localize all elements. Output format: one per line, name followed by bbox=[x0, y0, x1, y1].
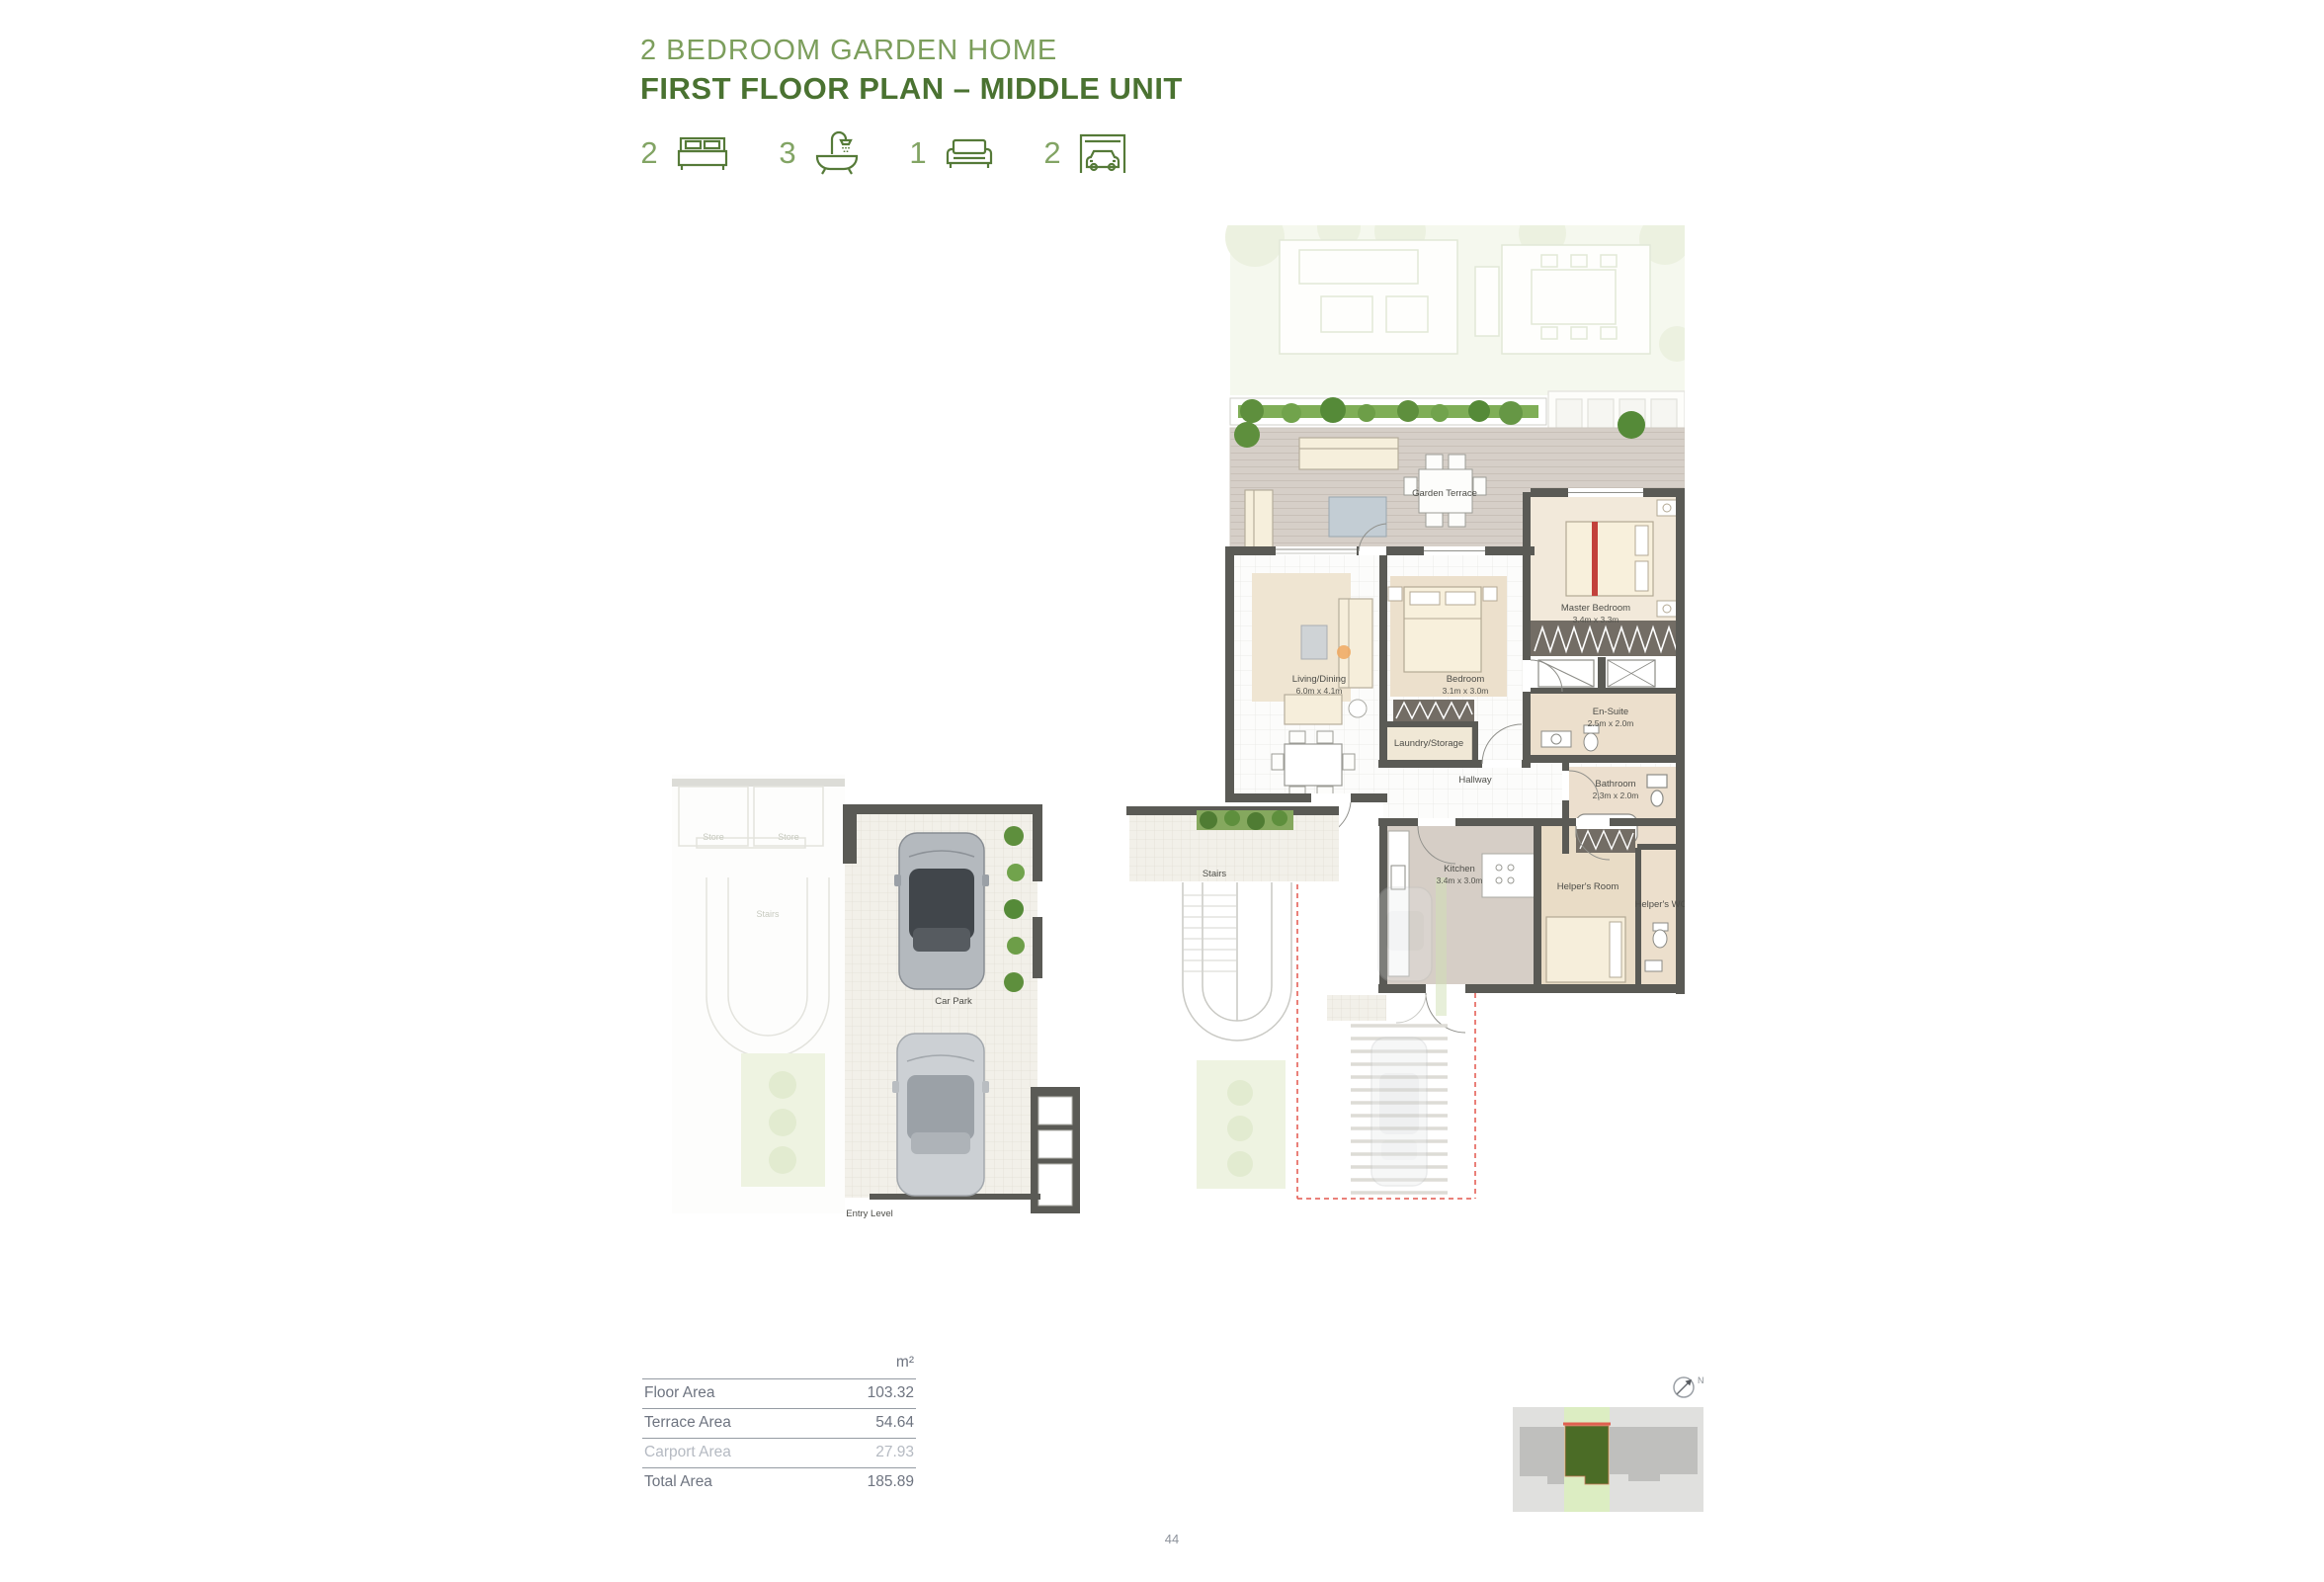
room-label: Master Bedroom bbox=[1561, 603, 1630, 614]
ghost-room-label: Stairs bbox=[756, 909, 780, 919]
north-label: N bbox=[1698, 1375, 1704, 1385]
stat-car-spaces: 2 bbox=[1043, 131, 1128, 175]
room-label: Stairs bbox=[1203, 869, 1227, 879]
area-table: m² Floor Area 103.32 Terrace Area 54.64 … bbox=[642, 1354, 916, 1497]
area-label: Floor Area bbox=[644, 1384, 715, 1402]
page-number: 44 bbox=[1132, 1532, 1211, 1546]
room-label: Hallway bbox=[1458, 775, 1492, 786]
room-label: Helper's Room bbox=[1557, 881, 1619, 892]
car-space-count: 2 bbox=[1043, 135, 1061, 171]
sofa-icon bbox=[943, 132, 996, 174]
ghost-car-upper bbox=[1378, 887, 1432, 981]
bathroom-count: 3 bbox=[779, 135, 796, 171]
north-indicator: N bbox=[1674, 1375, 1704, 1397]
area-label: Terrace Area bbox=[644, 1414, 731, 1432]
entry-porch bbox=[1327, 995, 1426, 1023]
room-dims: 3.4m x 3.0m bbox=[1437, 875, 1483, 885]
area-value: 185.89 bbox=[868, 1473, 914, 1491]
room-label: Helper's WC bbox=[1634, 899, 1685, 910]
room-label: En-Suite bbox=[1593, 707, 1628, 717]
ghost-room-label: Store bbox=[703, 832, 724, 842]
room-label: Entry Level bbox=[846, 1208, 893, 1219]
table-row: Terrace Area 54.64 bbox=[642, 1408, 916, 1438]
bed-icon bbox=[674, 131, 731, 175]
stat-living-rooms: 1 bbox=[909, 132, 996, 174]
area-unit-header: m² bbox=[642, 1354, 916, 1378]
ghost-car-pergola bbox=[1371, 1038, 1427, 1186]
table-row: Floor Area 103.32 bbox=[642, 1378, 916, 1408]
room-label: Kitchen bbox=[1444, 864, 1475, 874]
room-dims: 2.5m x 2.0m bbox=[1588, 718, 1634, 728]
carport bbox=[843, 804, 1080, 1213]
unit-locator-map: N bbox=[1510, 1368, 1707, 1521]
room-dims: 6.0m x 4.1m bbox=[1296, 686, 1343, 696]
header: 2 BEDROOM GARDEN HOME FIRST FLOOR PLAN –… bbox=[640, 36, 1183, 176]
room-label: Bathroom bbox=[1595, 779, 1635, 790]
floor-plan: Garden Terrace Living/Dining 6.0m x 4.1m… bbox=[647, 225, 1685, 1225]
garage-icon bbox=[1077, 131, 1128, 175]
page-subtitle: FIRST FLOOR PLAN – MIDDLE UNIT bbox=[640, 71, 1183, 107]
room-label: Laundry/Storage bbox=[1394, 738, 1463, 749]
living-count: 1 bbox=[909, 135, 927, 171]
page-title: 2 BEDROOM GARDEN HOME bbox=[640, 36, 1183, 67]
bath-icon bbox=[812, 130, 862, 176]
ghost-room-label: Store bbox=[778, 832, 799, 842]
car-2 bbox=[892, 1034, 989, 1196]
room-label: Garden Terrace bbox=[1412, 488, 1477, 499]
ghost-adjacent-carport bbox=[672, 775, 845, 1213]
unit-stats-row: 2 3 bbox=[640, 130, 1183, 176]
car-1 bbox=[894, 833, 989, 989]
stat-bathrooms: 3 bbox=[779, 130, 862, 176]
brochure-page: 2 BEDROOM GARDEN HOME FIRST FLOOR PLAN –… bbox=[0, 0, 2324, 1582]
room-dims: 3.1m x 3.0m bbox=[1443, 686, 1489, 696]
stat-bedrooms: 2 bbox=[640, 131, 731, 175]
bedroom-count: 2 bbox=[640, 135, 658, 171]
room-dims: 2.3m x 2.0m bbox=[1593, 791, 1639, 800]
area-label: Carport Area bbox=[644, 1444, 731, 1461]
table-row: Carport Area 27.93 bbox=[642, 1438, 916, 1467]
area-label: Total Area bbox=[644, 1473, 712, 1491]
table-row: Total Area 185.89 bbox=[642, 1467, 916, 1497]
area-value: 27.93 bbox=[875, 1444, 914, 1461]
area-value: 54.64 bbox=[875, 1414, 914, 1432]
site-plan bbox=[1513, 1407, 1703, 1512]
room-dims: 3.4m x 3.3m bbox=[1573, 615, 1619, 624]
room-label: Living/Dining bbox=[1292, 674, 1346, 685]
terrace-planter bbox=[1230, 397, 1546, 425]
area-value: 103.32 bbox=[868, 1384, 914, 1402]
highlighted-unit bbox=[1565, 1426, 1609, 1484]
room-label: Bedroom bbox=[1447, 674, 1485, 685]
room-label: Car Park bbox=[935, 996, 972, 1007]
stairs-balcony bbox=[1126, 806, 1339, 1189]
